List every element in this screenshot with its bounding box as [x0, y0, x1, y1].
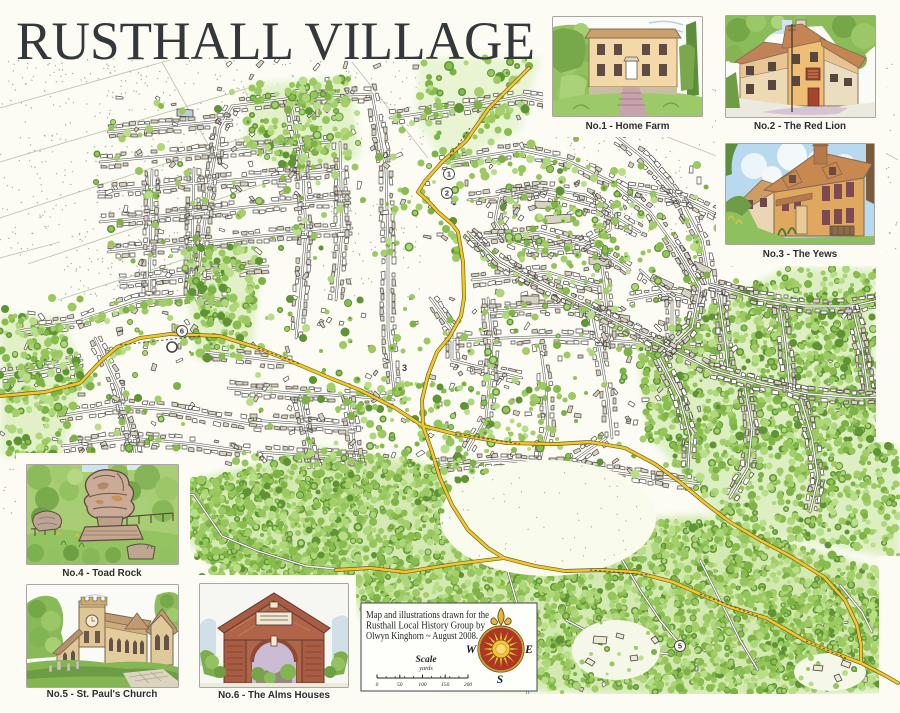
svg-text:Rusthall Local History Group b: Rusthall Local History Group by	[366, 621, 486, 632]
svg-text:150: 150	[441, 682, 450, 688]
svg-text:No.5 - St. Paul's Church: No.5 - St. Paul's Church	[47, 689, 158, 700]
svg-text:5: 5	[678, 642, 682, 651]
svg-text:Scale: Scale	[415, 655, 437, 665]
svg-text:W: W	[466, 644, 477, 656]
svg-text:No.4 - Toad Rock: No.4 - Toad Rock	[62, 568, 142, 579]
svg-text:yards: yards	[418, 665, 433, 672]
svg-text:1: 1	[447, 170, 451, 179]
svg-text:E: E	[524, 644, 533, 656]
svg-text:RUSTHALL VILLAGE: RUSTHALL VILLAGE	[16, 11, 535, 71]
svg-text:3: 3	[402, 363, 407, 373]
svg-text:No.1 - Home Farm: No.1 - Home Farm	[586, 121, 670, 132]
svg-text:No.2 - The Red Lion: No.2 - The Red Lion	[754, 121, 846, 132]
svg-text:Map and illustrations drawn fo: Map and illustrations drawn for the	[366, 610, 489, 621]
svg-text:2: 2	[445, 189, 449, 198]
svg-text:Olwyn Kinghorn ~ August 2008.: Olwyn Kinghorn ~ August 2008.	[366, 631, 478, 642]
svg-text:0: 0	[376, 682, 379, 688]
svg-text:S: S	[497, 674, 503, 686]
svg-text:100: 100	[418, 682, 427, 688]
svg-text:200: 200	[464, 682, 473, 688]
svg-text:No.3 - The Yews: No.3 - The Yews	[763, 249, 838, 260]
svg-text:50: 50	[397, 682, 403, 688]
svg-text:6: 6	[180, 327, 184, 336]
svg-text:No.6 - The Alms Houses: No.6 - The Alms Houses	[218, 690, 330, 701]
